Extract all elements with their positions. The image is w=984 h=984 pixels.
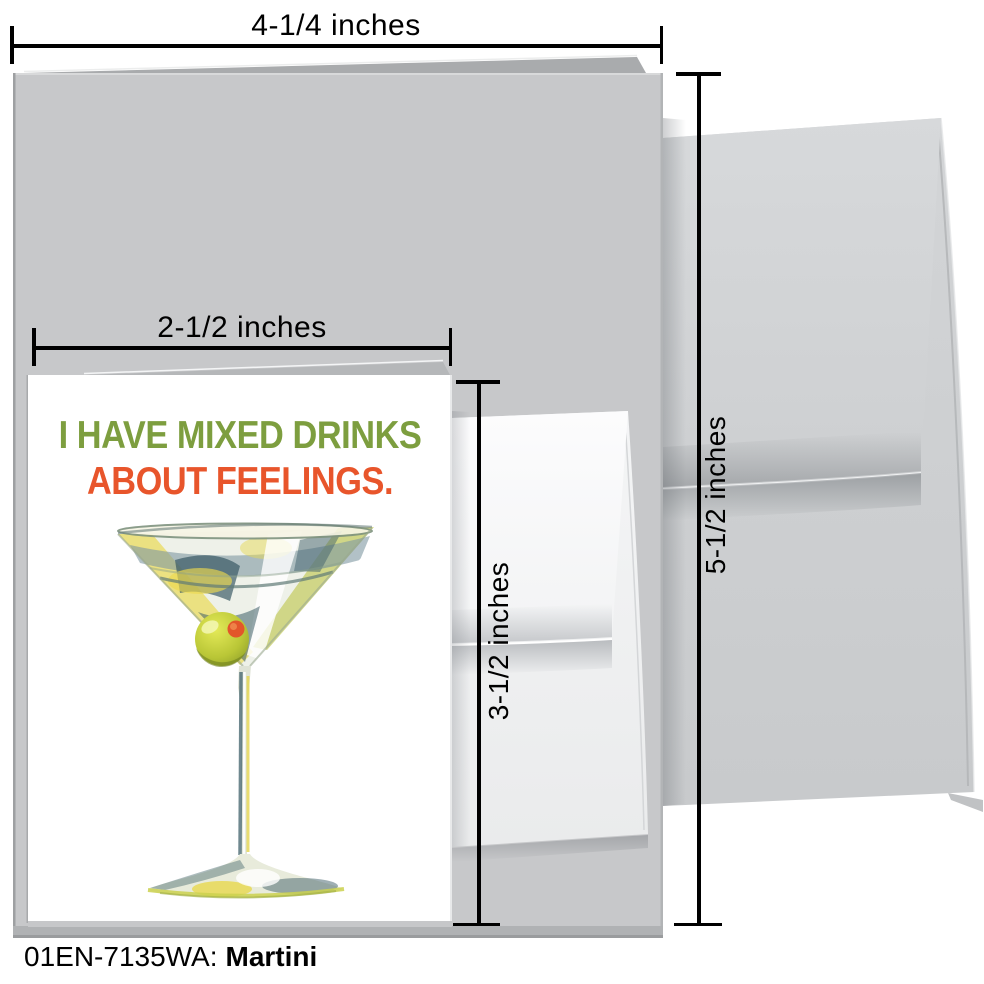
measure-large-card-height-line [697,73,701,926]
large-envelope-corner-fold [948,793,983,812]
measure-small-card-height-label: 3-1/2 inches [483,562,515,721]
large-card-back-fold [24,57,646,73]
measure-top-width-label: 4-1/4 inches [180,9,492,43]
headline-line2: ABOUT FEELINGS. [53,459,426,505]
measure-small-card-width-tick-right [449,328,453,366]
measure-large-card-height-tick-top [676,72,721,76]
product-sku: 01EN-7135WA: [24,941,218,972]
measure-small-card-height-tick-bottom [453,923,500,927]
measure-small-card-height-tick-top [456,380,500,384]
measure-top-width-line [10,44,663,48]
product-caption: 01EN-7135WA:Martini [24,941,317,973]
pimento [228,621,245,638]
product-name: Martini [226,941,318,972]
measure-small-card-width-label: 2-1/2 inches [92,311,392,345]
measure-large-card-height-tick-bottom [674,923,722,927]
olive [195,612,249,667]
small-envelope [452,411,648,862]
measure-large-card-height-label: 5-1/2 inches [700,416,732,575]
card-headline: I HAVE MIXED DRINKS ABOUT FEELINGS. [28,413,452,505]
measure-small-card-height-line [477,381,481,926]
greeting-card-product-mockup: I HAVE MIXED DRINKS ABOUT FEELINGS. 4-1/… [0,0,984,984]
glass-stem [238,666,251,856]
measure-top-width-tick-right [660,26,664,64]
measure-top-width-tick-left [10,26,14,64]
headline-line1: I HAVE MIXED DRINKS [53,413,426,459]
measure-small-card-width-tick-left [32,328,36,366]
measure-small-card-width-line [32,346,452,350]
